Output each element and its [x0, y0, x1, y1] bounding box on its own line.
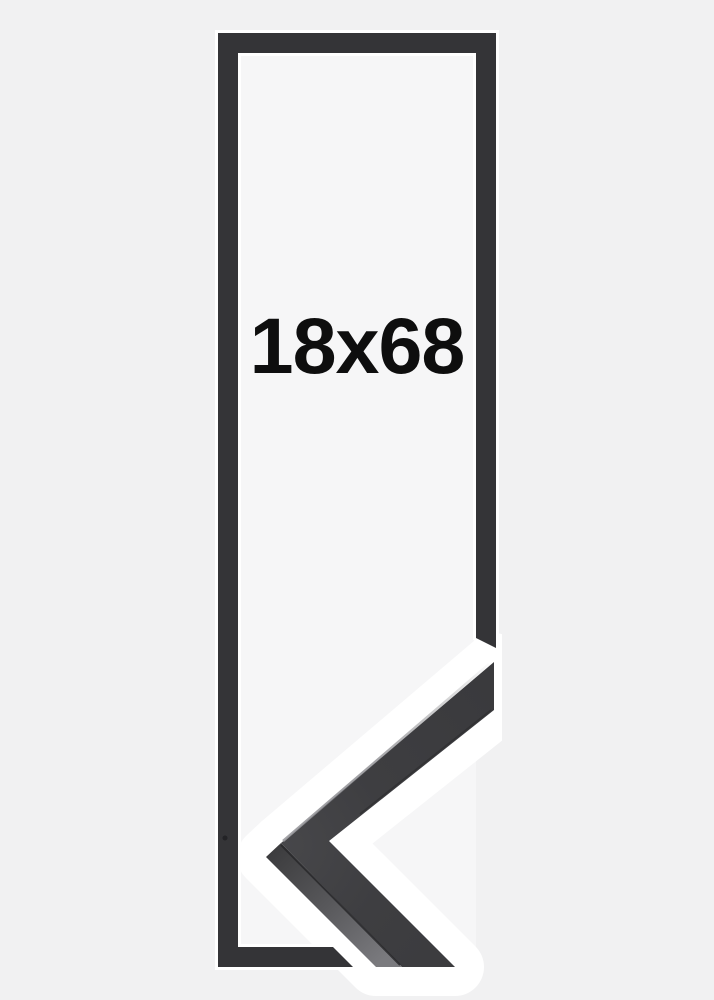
frame-graphic [0, 0, 714, 1000]
frame-product-image: 18x68 [0, 0, 714, 1000]
frame-pin-dot [223, 836, 228, 841]
frame-size-label: 18x68 [238, 306, 476, 385]
